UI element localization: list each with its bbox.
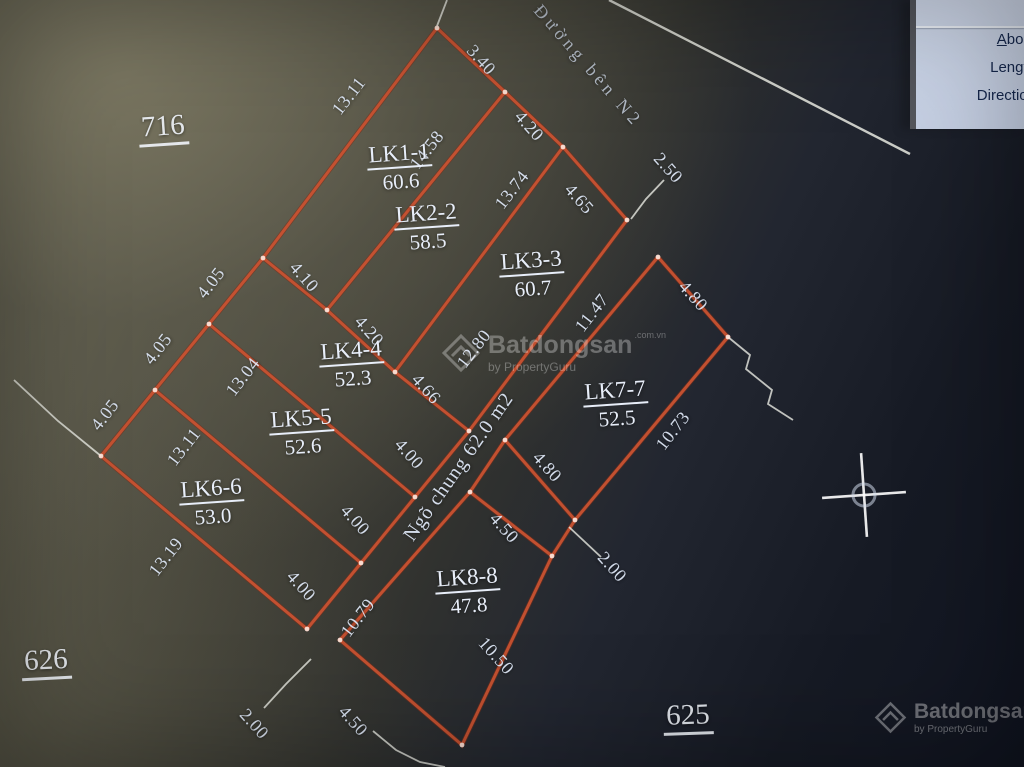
plot-label-lk2-2: LK2-258.5 <box>393 199 462 255</box>
survey-corner-dot <box>656 255 661 260</box>
survey-corner-dot <box>261 256 266 261</box>
survey-corner-dot <box>153 388 158 393</box>
survey-corner-dot <box>305 627 310 632</box>
crosshair-marker <box>819 450 909 540</box>
plot-label-lk5-5: LK5-552.6 <box>268 404 337 460</box>
accelerator-letter: A <box>997 31 1007 48</box>
map-sheet-ref-626: 626 <box>20 643 71 682</box>
cadastral-map-photo: 13.1114.583.404.2013.744.652.504.8011.47… <box>0 0 1024 767</box>
plot-label-lk8-8: LK8-847.8 <box>434 563 503 619</box>
plot-id: LK6-6 <box>178 474 245 506</box>
survey-corner-dot <box>468 490 473 495</box>
survey-corner-dot <box>726 335 731 340</box>
map-sheet-ref-716: 716 <box>137 108 189 147</box>
panel-divider <box>916 26 1024 28</box>
plot-id: LK7-7 <box>582 376 649 408</box>
survey-corner-dot <box>561 145 566 150</box>
plot-label-lk4-4: LK4-452.3 <box>318 336 387 392</box>
plot-id: LK8-8 <box>434 563 501 595</box>
parcel-boundary-line <box>101 258 263 456</box>
survey-corner-dot <box>207 322 212 327</box>
panel-field-about: About <box>977 31 1024 49</box>
survey-corner-dot <box>359 561 364 566</box>
leader-line <box>569 527 601 557</box>
cad-properties-panel: AboutLengthDirection <box>910 0 1024 129</box>
leader-line <box>631 180 664 219</box>
survey-corner-dot <box>503 90 508 95</box>
leader-line <box>437 0 447 26</box>
survey-corner-dot <box>550 554 555 559</box>
panel-field-length: Length <box>977 59 1024 77</box>
survey-corner-dot <box>460 743 465 748</box>
plot-area-m2: 52.3 <box>320 365 387 392</box>
plot-area-m2: 60.7 <box>500 275 567 302</box>
accelerator-letter: L <box>990 59 998 76</box>
survey-corner-dot <box>393 370 398 375</box>
map-sheet-ref-625: 625 <box>663 698 714 736</box>
survey-corner-dot <box>435 26 440 31</box>
survey-corner-dot <box>503 438 508 443</box>
plot-area-m2: 52.6 <box>270 433 337 460</box>
plot-id: LK3-3 <box>498 246 565 278</box>
survey-corner-dot <box>338 638 343 643</box>
plot-area-m2: 47.8 <box>436 592 503 619</box>
panel-field-direction: Direction <box>977 87 1024 105</box>
leader-line <box>264 659 311 708</box>
panel-field-labels: AboutLengthDirection <box>977 31 1024 115</box>
plot-label-lk6-6: LK6-653.0 <box>178 474 247 530</box>
survey-corner-dot <box>99 454 104 459</box>
leader-line <box>373 731 445 767</box>
plot-id: LK2-2 <box>393 199 460 231</box>
accelerator-letter: D <box>977 87 988 104</box>
plot-area-m2: 60.6 <box>368 168 435 195</box>
parcel-boundary-line <box>552 520 575 556</box>
survey-corner-dot <box>413 495 418 500</box>
plot-label-lk1-1: LK1-160.6 <box>366 139 435 195</box>
survey-corner-dot <box>625 218 630 223</box>
road-edge-line <box>609 0 910 154</box>
plot-area-m2: 53.0 <box>180 503 247 530</box>
plot-label-lk3-3: LK3-360.7 <box>498 246 567 302</box>
plot-id: LK5-5 <box>268 404 335 436</box>
survey-corner-dot <box>325 308 330 313</box>
plot-id: LK1-1 <box>366 139 433 171</box>
plot-label-lk7-7: LK7-752.5 <box>582 376 651 432</box>
plot-area-m2: 52.5 <box>584 405 651 432</box>
plot-area-m2: 58.5 <box>395 228 462 255</box>
survey-corner-dot <box>573 518 578 523</box>
plot-id: LK4-4 <box>318 336 385 368</box>
leader-line <box>728 337 793 420</box>
